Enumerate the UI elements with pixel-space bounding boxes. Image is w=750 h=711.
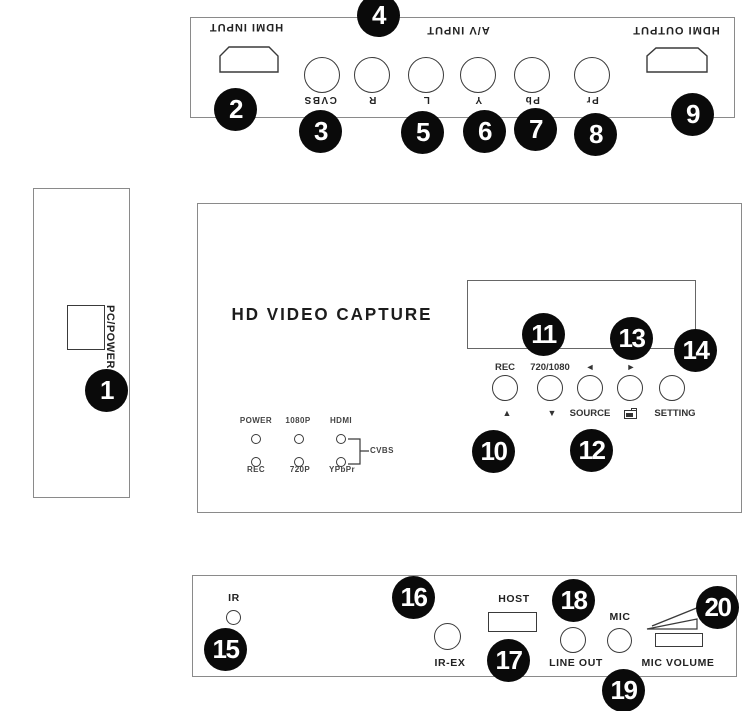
snapshot-icon	[624, 408, 638, 420]
callout-14: 14	[674, 329, 717, 372]
callout-10: 10	[472, 430, 515, 473]
hdmi-led	[336, 434, 346, 444]
callout-8: 8	[574, 113, 617, 156]
callout-16: 16	[392, 576, 435, 619]
rca-jack-pb	[514, 57, 550, 93]
callout-6: 6	[463, 110, 506, 153]
source-button-label: SOURCE	[555, 408, 625, 419]
callout-18: 18	[552, 579, 595, 622]
lcd-display	[467, 280, 696, 349]
callout-15: 15	[204, 628, 247, 671]
callout-1: 1	[85, 369, 128, 412]
line-out-jack	[560, 627, 586, 653]
jack-label-y: Y	[448, 94, 508, 105]
ir-label: IR	[189, 592, 279, 604]
rec-button	[492, 375, 518, 401]
rca-jack-l	[408, 57, 444, 93]
setting-button	[659, 375, 685, 401]
right-button	[617, 375, 643, 401]
mic-volume-slider	[655, 633, 703, 647]
callout-12: 12	[570, 429, 613, 472]
hdmi-output-label: HDMI OUTPUT	[601, 24, 750, 36]
led-label-hdmi: HDMI	[306, 416, 376, 425]
callout-13: 13	[610, 317, 653, 360]
pc-power-port	[67, 305, 105, 350]
callout-20: 20	[696, 586, 739, 629]
rca-jack-cvbs	[304, 57, 340, 93]
power-led	[251, 434, 261, 444]
callout-19: 19	[602, 669, 645, 711]
callout-17: 17	[487, 639, 530, 682]
callout-11: 11	[522, 313, 565, 356]
line-out-label: LINE OUT	[531, 657, 621, 669]
720-1080-button	[537, 375, 563, 401]
setting-button-label: SETTING	[640, 408, 710, 419]
jack-label-pb: Pb	[502, 94, 562, 105]
device-diagram: HDMI INPUT A/V INPUT HDMI OUTPUT CVBS R …	[0, 0, 750, 711]
rca-jack-y	[460, 57, 496, 93]
av-input-label: A/V INPUT	[383, 24, 533, 36]
callout-9: 9	[671, 93, 714, 136]
jack-label-l: L	[396, 94, 456, 105]
callout-3: 3	[299, 110, 342, 153]
mic-jack	[607, 628, 632, 653]
callout-7: 7	[514, 108, 557, 151]
mic-volume-label: MIC VOLUME	[633, 657, 723, 669]
jack-label-pr: Pr	[562, 94, 622, 105]
jack-label-cvbs: CVBS	[290, 94, 350, 105]
right-arrow-icon: ►	[596, 362, 666, 372]
ir-ex-jack	[434, 623, 461, 650]
host-usb-port	[488, 612, 537, 632]
led-label-ypbpr: YPbPr	[307, 465, 377, 474]
ir-receiver	[226, 610, 241, 625]
1080p-led	[294, 434, 304, 444]
device-logo: HD VIDEO CAPTURE	[222, 305, 442, 326]
ir-ex-label: IR-EX	[405, 657, 495, 669]
rca-jack-pr	[574, 57, 610, 93]
left-button	[577, 375, 603, 401]
rca-jack-r	[354, 57, 390, 93]
jack-label-r: R	[342, 94, 402, 105]
hdmi-input-label: HDMI INPUT	[171, 21, 321, 33]
led-group-label-cvbs: CVBS	[370, 446, 440, 455]
host-label: HOST	[469, 593, 559, 605]
callout-2: 2	[214, 88, 257, 131]
callout-5: 5	[401, 111, 444, 154]
